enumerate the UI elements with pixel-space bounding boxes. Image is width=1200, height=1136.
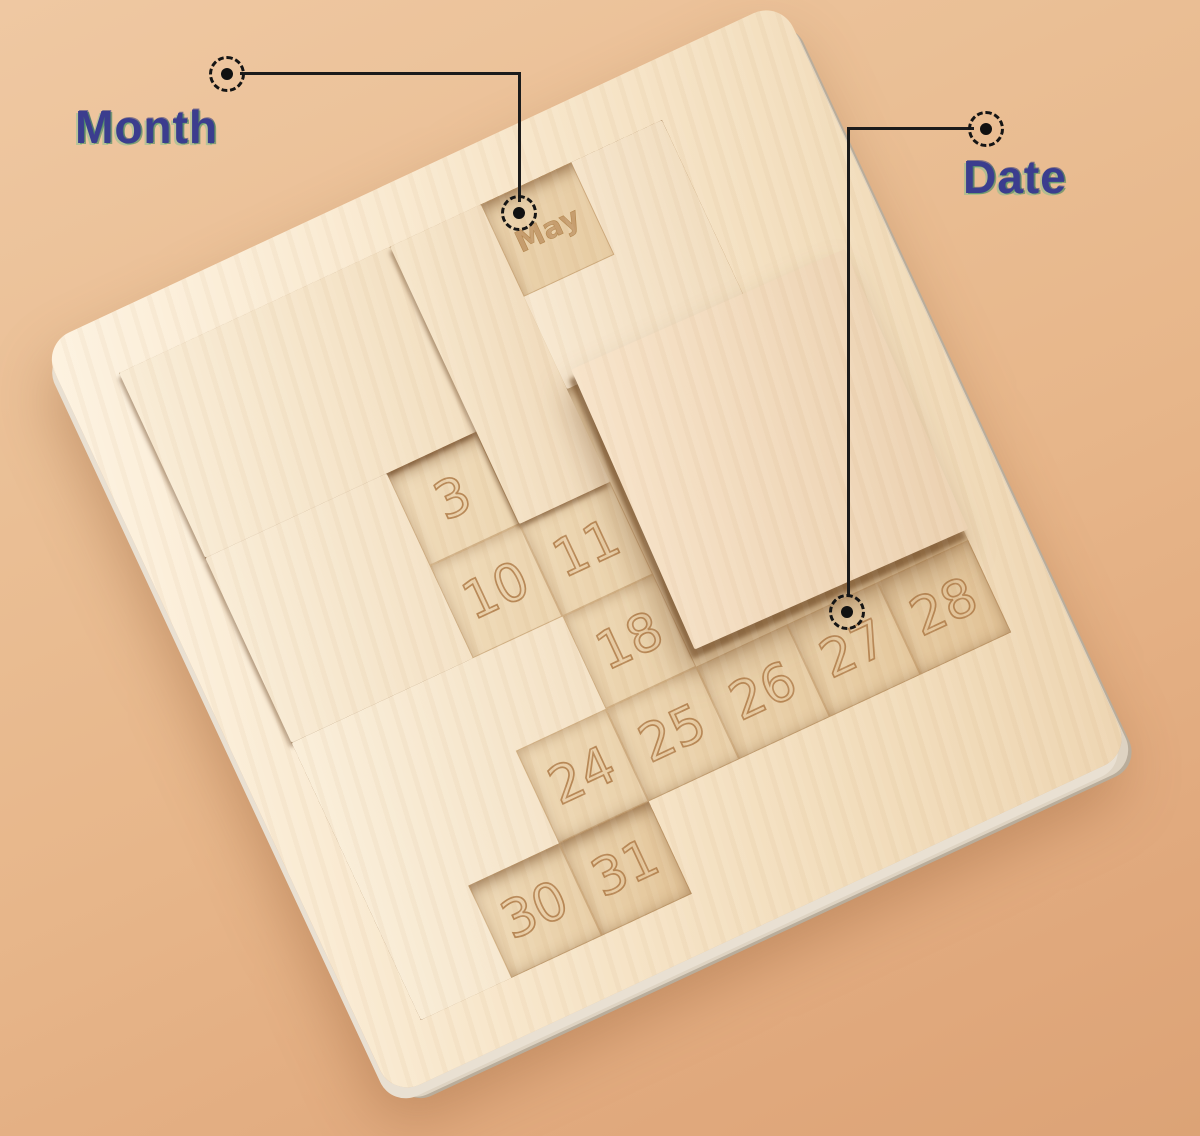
date-cell-number: 11 <box>546 511 628 586</box>
date-callout-line-vertical <box>847 127 850 597</box>
date-cell-number: 30 <box>494 873 576 948</box>
month-callout-line-horizontal <box>240 72 520 75</box>
date-cell-number: 25 <box>632 696 714 771</box>
date-cell-number: 28 <box>903 570 985 645</box>
date-cell-number: 3 <box>427 468 479 529</box>
product-photo: May 3 10 11 18 24 25 26 27 28 30 <box>0 0 1200 1136</box>
date-cell-number: 18 <box>589 604 671 679</box>
date-cell-number: 31 <box>584 831 666 906</box>
date-label: Date <box>963 150 1067 204</box>
month-target-marker-icon <box>209 56 245 92</box>
date-callout-line-horizontal <box>848 127 974 130</box>
date-cell-number: 24 <box>541 739 623 814</box>
date-cell-number: 10 <box>455 554 537 629</box>
month-label: Month <box>75 100 218 154</box>
month-cell-marker-icon <box>501 195 537 231</box>
month-callout-line-vertical <box>518 72 521 202</box>
date-cell-number: 26 <box>722 654 804 729</box>
date-cell-marker-icon <box>829 594 865 630</box>
date-target-marker-icon <box>968 111 1004 147</box>
